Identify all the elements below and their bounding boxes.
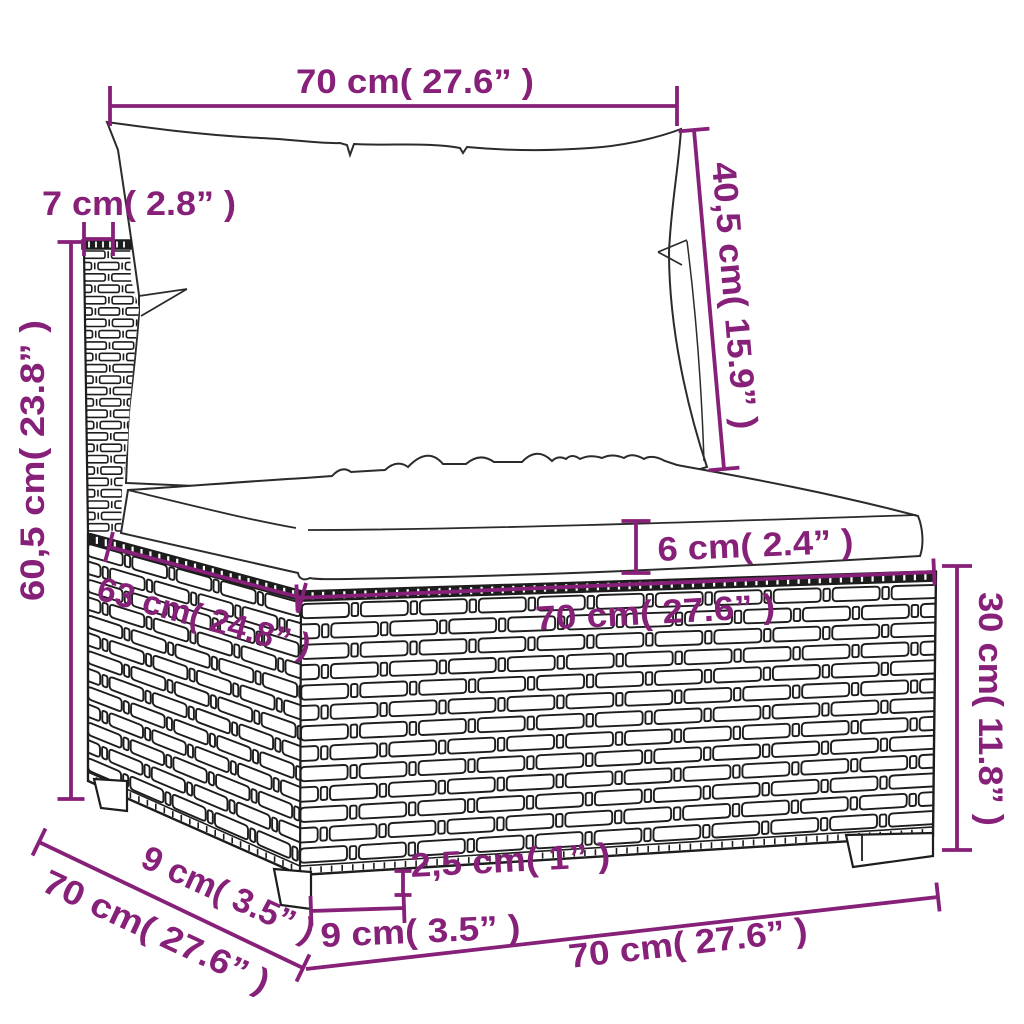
svg-text:30 cm( 11.8” ): 30 cm( 11.8” ) <box>971 592 1009 826</box>
svg-text:7 cm( 2.8” ): 7 cm( 2.8” ) <box>42 185 236 223</box>
svg-text:60,5 cm( 23.8” ): 60,5 cm( 23.8” ) <box>14 320 52 601</box>
svg-text:70 cm( 27.6” ): 70 cm( 27.6” ) <box>296 63 534 101</box>
